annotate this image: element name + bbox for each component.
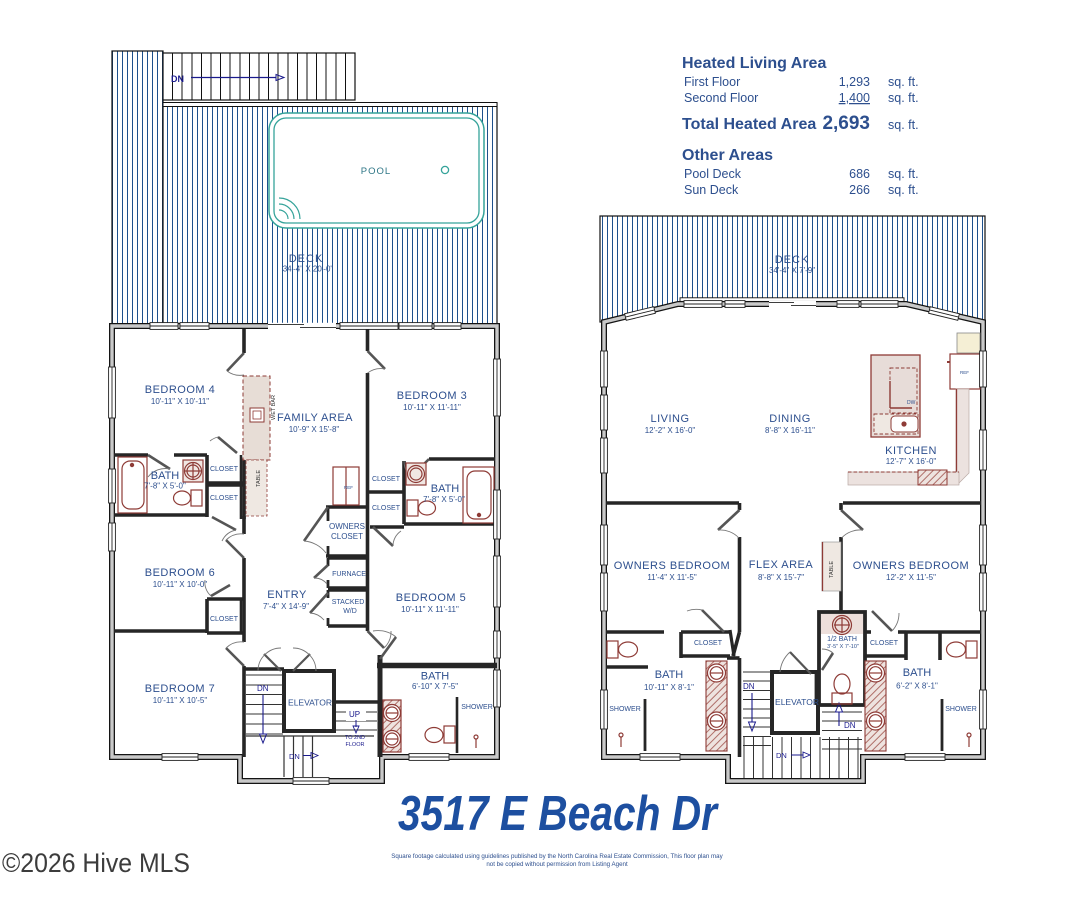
svg-text:sq. ft.: sq. ft.: [888, 75, 919, 89]
svg-text:Pool Deck: Pool Deck: [684, 167, 742, 181]
svg-text:10'-11" X 11'-11": 10'-11" X 11'-11": [401, 605, 459, 614]
svg-text:10'-11" X 10'-5": 10'-11" X 10'-5": [153, 696, 208, 705]
svg-text:ELEVATOR: ELEVATOR: [775, 697, 819, 707]
svg-text:FLEX AREA: FLEX AREA: [749, 559, 814, 571]
svg-text:SHOWER: SHOWER: [609, 706, 641, 713]
svg-text:DN: DN: [776, 751, 787, 760]
svg-text:7'-4" X 14'-9": 7'-4" X 14'-9": [263, 602, 309, 611]
svg-text:TABLE: TABLE: [829, 561, 835, 578]
svg-text:BEDROOM 3: BEDROOM 3: [397, 390, 468, 402]
svg-text:BEDROOM 6: BEDROOM 6: [145, 567, 216, 579]
svg-text:sq. ft.: sq. ft.: [888, 183, 919, 197]
svg-text:W/D: W/D: [343, 608, 357, 615]
svg-text:7'-8" X 5'-0": 7'-8" X 5'-0": [423, 495, 465, 504]
svg-text:12'-2" X 11'-5": 12'-2" X 11'-5": [886, 573, 936, 582]
svg-text:CLOSET: CLOSET: [210, 616, 239, 623]
svg-text:34'-4" X 7'-9": 34'-4" X 7'-9": [769, 266, 815, 275]
svg-text:REF: REF: [344, 485, 353, 490]
svg-text:BATH: BATH: [655, 669, 684, 681]
svg-text:3517 E Beach Dr: 3517 E Beach Dr: [398, 787, 719, 841]
svg-text:CLOSET: CLOSET: [372, 476, 401, 483]
svg-text:FLOOR: FLOOR: [346, 742, 365, 748]
svg-text:ENTRY: ENTRY: [267, 589, 307, 601]
svg-text:6'-2" X 8'-1": 6'-2" X 8'-1": [896, 682, 938, 691]
svg-text:7'-8" X 5'-0": 7'-8" X 5'-0": [144, 482, 186, 491]
svg-text:OWNERS BEDROOM: OWNERS BEDROOM: [853, 560, 969, 572]
svg-text:266: 266: [849, 183, 870, 197]
svg-text:BEDROOM 7: BEDROOM 7: [145, 683, 216, 695]
svg-text:CLOSET: CLOSET: [331, 532, 363, 541]
svg-text:POOL: POOL: [361, 166, 391, 177]
svg-text:BATH: BATH: [431, 483, 460, 495]
svg-text:OWNERS BEDROOM: OWNERS BEDROOM: [614, 560, 730, 572]
svg-text:sq. ft.: sq. ft.: [888, 167, 919, 181]
svg-text:3'-5" X 7'-10": 3'-5" X 7'-10": [827, 644, 859, 650]
svg-text:Total Heated Area: Total Heated Area: [682, 116, 816, 133]
svg-text:DN: DN: [743, 682, 755, 691]
svg-text:DN: DN: [171, 74, 184, 84]
svg-text:6'-10" X 7'-5": 6'-10" X 7'-5": [412, 682, 458, 691]
svg-text:sq. ft.: sq. ft.: [888, 91, 919, 105]
svg-text:Other Areas: Other Areas: [682, 147, 773, 164]
svg-text:DN: DN: [257, 684, 269, 693]
svg-text:2,693: 2,693: [822, 113, 870, 134]
svg-text:©2026 Hive MLS: ©2026 Hive MLS: [2, 848, 190, 878]
svg-text:STACKED: STACKED: [332, 599, 365, 606]
svg-text:10'-11" X 8'-1": 10'-11" X 8'-1": [644, 683, 694, 692]
svg-text:Square footage calculated usin: Square footage calculated using guidelin…: [391, 853, 723, 860]
svg-text:1,293: 1,293: [839, 75, 870, 89]
svg-text:CLOSET: CLOSET: [694, 640, 723, 647]
svg-text:TO 2ND: TO 2ND: [345, 735, 365, 741]
svg-text:TABLE: TABLE: [256, 470, 262, 487]
svg-text:OWNERS: OWNERS: [329, 522, 365, 531]
svg-text:BATH: BATH: [903, 667, 932, 679]
svg-text:CLOSET: CLOSET: [210, 495, 239, 502]
svg-text:CLOSET: CLOSET: [210, 466, 239, 473]
svg-text:BEDROOM 5: BEDROOM 5: [396, 592, 467, 604]
svg-text:ELEVATOR: ELEVATOR: [288, 698, 332, 708]
svg-text:8'-8" X 16'-11": 8'-8" X 16'-11": [765, 426, 815, 435]
svg-text:DINING: DINING: [769, 413, 811, 425]
svg-text:sq. ft.: sq. ft.: [888, 118, 919, 132]
svg-text:FAMILY AREA: FAMILY AREA: [277, 412, 353, 424]
svg-text:DN: DN: [844, 721, 856, 730]
svg-text:Heated Living Area: Heated Living Area: [682, 55, 826, 72]
svg-text:KITCHEN: KITCHEN: [885, 445, 937, 457]
svg-text:DECK: DECK: [289, 253, 324, 265]
svg-text:11'-4" X 11'-5": 11'-4" X 11'-5": [647, 573, 697, 582]
svg-text:10'-11" X 11'-11": 10'-11" X 11'-11": [403, 403, 461, 412]
svg-text:UP: UP: [349, 710, 360, 719]
svg-text:LIVING: LIVING: [650, 413, 689, 425]
svg-text:12'-2" X 16'-0": 12'-2" X 16'-0": [645, 426, 696, 435]
svg-text:686: 686: [849, 167, 870, 181]
svg-text:DN: DN: [289, 752, 300, 761]
svg-text:12'-7" X 16'-0": 12'-7" X 16'-0": [886, 457, 937, 466]
svg-text:not be copied without permissi: not be copied without permission from Li…: [486, 861, 628, 868]
svg-text:1/2 BATH: 1/2 BATH: [827, 636, 857, 643]
svg-text:BATH: BATH: [151, 470, 180, 482]
svg-text:10'-11" X 10'-0": 10'-11" X 10'-0": [153, 580, 208, 589]
svg-text:BATH: BATH: [421, 671, 450, 683]
svg-text:10'-11" X 10'-11": 10'-11" X 10'-11": [151, 397, 209, 406]
svg-text:FURNACE: FURNACE: [332, 571, 366, 578]
svg-text:1,400: 1,400: [839, 91, 870, 105]
svg-text:CLOSET: CLOSET: [870, 640, 899, 647]
svg-text:DECK: DECK: [775, 254, 810, 266]
svg-text:SHOWER: SHOWER: [461, 704, 493, 711]
svg-text:Second Floor: Second Floor: [684, 91, 758, 105]
svg-text:First Floor: First Floor: [684, 75, 740, 89]
svg-text:10'-9" X 15'-8": 10'-9" X 15'-8": [289, 425, 340, 434]
svg-text:SHOWER: SHOWER: [945, 706, 977, 713]
svg-text:8'-8" X 15'-7": 8'-8" X 15'-7": [758, 573, 804, 582]
svg-text:34'-4" X 20'-0": 34'-4" X 20'-0": [283, 265, 334, 274]
svg-text:BEDROOM 4: BEDROOM 4: [145, 384, 216, 396]
svg-text:REF: REF: [960, 370, 969, 375]
svg-text:CLOSET: CLOSET: [372, 505, 401, 512]
svg-text:Sun Deck: Sun Deck: [684, 183, 739, 197]
svg-text:DW: DW: [907, 400, 916, 406]
